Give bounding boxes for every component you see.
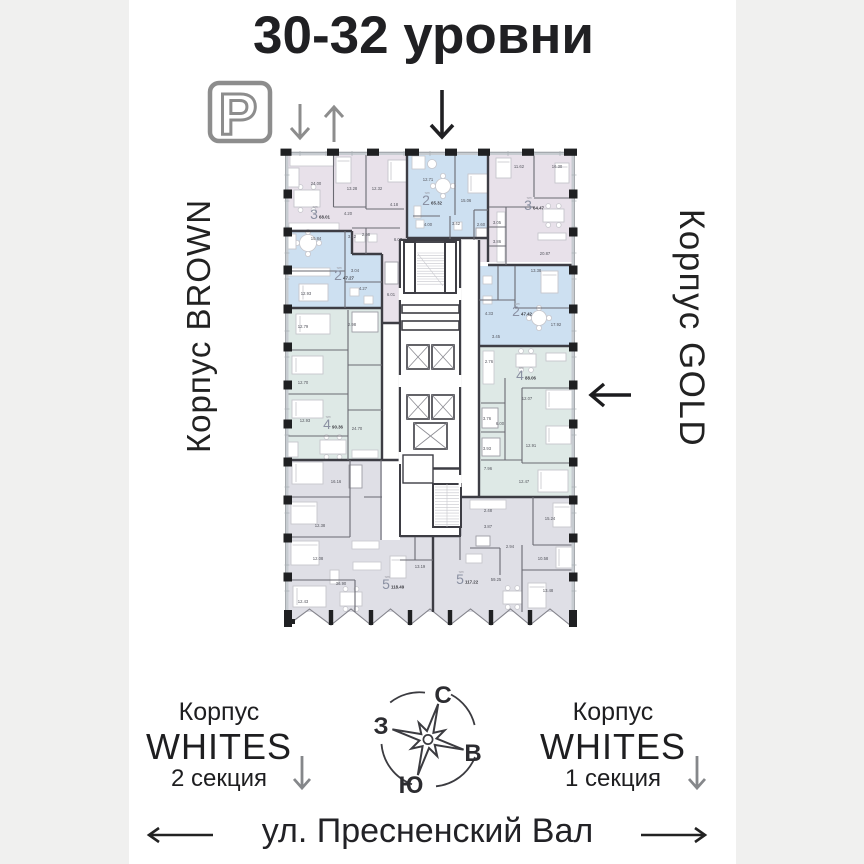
svg-text:тип: тип: [385, 575, 390, 579]
svg-text:12.93: 12.93: [301, 291, 312, 296]
svg-text:12.79: 12.79: [298, 324, 309, 329]
svg-text:З: З: [373, 713, 388, 740]
svg-text:3.05: 3.05: [493, 220, 502, 225]
svg-text:4.33: 4.33: [485, 311, 494, 316]
svg-text:2.96: 2.96: [362, 232, 371, 237]
svg-text:10.58: 10.58: [538, 556, 549, 561]
svg-text:15.84: 15.84: [311, 236, 322, 241]
svg-text:24.70: 24.70: [352, 426, 363, 431]
svg-text:3.76: 3.76: [483, 416, 492, 421]
svg-text:59.25: 59.25: [491, 577, 502, 582]
svg-text:3.42: 3.42: [452, 221, 461, 226]
svg-text:6.01: 6.01: [387, 292, 396, 297]
svg-text:В: В: [464, 740, 481, 767]
svg-text:12.71: 12.71: [423, 177, 434, 182]
svg-text:88.06: 88.06: [525, 376, 537, 381]
svg-text:тип: тип: [515, 302, 520, 306]
svg-text:90.36: 90.36: [332, 425, 344, 430]
svg-text:118.49: 118.49: [391, 585, 405, 590]
svg-text:12.32: 12.32: [372, 186, 383, 191]
svg-text:13.28: 13.28: [347, 186, 358, 191]
svg-text:3.86: 3.86: [493, 239, 502, 244]
svg-text:тип: тип: [326, 415, 331, 419]
svg-text:12.43: 12.43: [298, 599, 309, 604]
svg-text:4.00: 4.00: [424, 222, 433, 227]
svg-text:15.24: 15.24: [545, 516, 556, 521]
svg-text:12.38: 12.38: [315, 523, 326, 528]
svg-text:117.22: 117.22: [465, 580, 479, 585]
svg-text:15.06: 15.06: [461, 198, 472, 203]
svg-text:12.47: 12.47: [519, 479, 530, 484]
svg-text:11.62: 11.62: [514, 164, 525, 169]
svg-text:12.08: 12.08: [313, 556, 324, 561]
svg-text:64.47: 64.47: [533, 206, 545, 211]
svg-text:65.32: 65.32: [431, 201, 443, 206]
svg-text:4.20: 4.20: [344, 211, 353, 216]
svg-text:4.18: 4.18: [390, 202, 399, 207]
svg-text:3.93: 3.93: [483, 446, 492, 451]
svg-text:2.48: 2.48: [484, 508, 493, 513]
svg-text:тип: тип: [313, 205, 318, 209]
svg-text:12.91: 12.91: [526, 443, 537, 448]
svg-text:тип: тип: [527, 196, 532, 200]
svg-text:2.94: 2.94: [506, 544, 515, 549]
svg-text:12.07: 12.07: [522, 396, 533, 401]
svg-text:16.16: 16.16: [331, 479, 342, 484]
svg-text:17.92: 17.92: [551, 322, 562, 327]
svg-text:47.42: 47.42: [521, 312, 533, 317]
svg-text:4.27: 4.27: [359, 286, 368, 291]
svg-text:тип: тип: [337, 266, 342, 270]
svg-text:3.45: 3.45: [492, 334, 501, 339]
svg-text:3.04: 3.04: [351, 268, 360, 273]
svg-text:7.96: 7.96: [484, 466, 493, 471]
svg-text:6.07: 6.07: [394, 237, 403, 242]
svg-text:6.00: 6.00: [496, 421, 505, 426]
svg-text:Ю: Ю: [399, 772, 424, 799]
svg-text:тип: тип: [425, 191, 430, 195]
svg-text:3.87: 3.87: [484, 524, 493, 529]
svg-text:36.90: 36.90: [336, 581, 347, 586]
svg-text:тип: тип: [519, 366, 524, 370]
svg-text:12.93: 12.93: [300, 418, 311, 423]
svg-text:2.98: 2.98: [348, 322, 357, 327]
svg-text:13.19: 13.19: [415, 564, 426, 569]
svg-text:20.87: 20.87: [540, 251, 551, 256]
svg-text:тип: тип: [459, 570, 464, 574]
svg-text:68.01: 68.01: [319, 215, 331, 220]
svg-text:13.38: 13.38: [531, 268, 542, 273]
svg-text:12.70: 12.70: [298, 380, 309, 385]
svg-text:3.12: 3.12: [348, 234, 357, 239]
svg-text:13.48: 13.48: [543, 588, 554, 593]
svg-text:2.60: 2.60: [477, 222, 486, 227]
svg-text:24.00: 24.00: [311, 181, 322, 186]
svg-text:16.30: 16.30: [552, 164, 563, 169]
svg-text:47.27: 47.27: [343, 276, 355, 281]
svg-text:С: С: [434, 682, 451, 709]
svg-text:2.76: 2.76: [485, 359, 494, 364]
